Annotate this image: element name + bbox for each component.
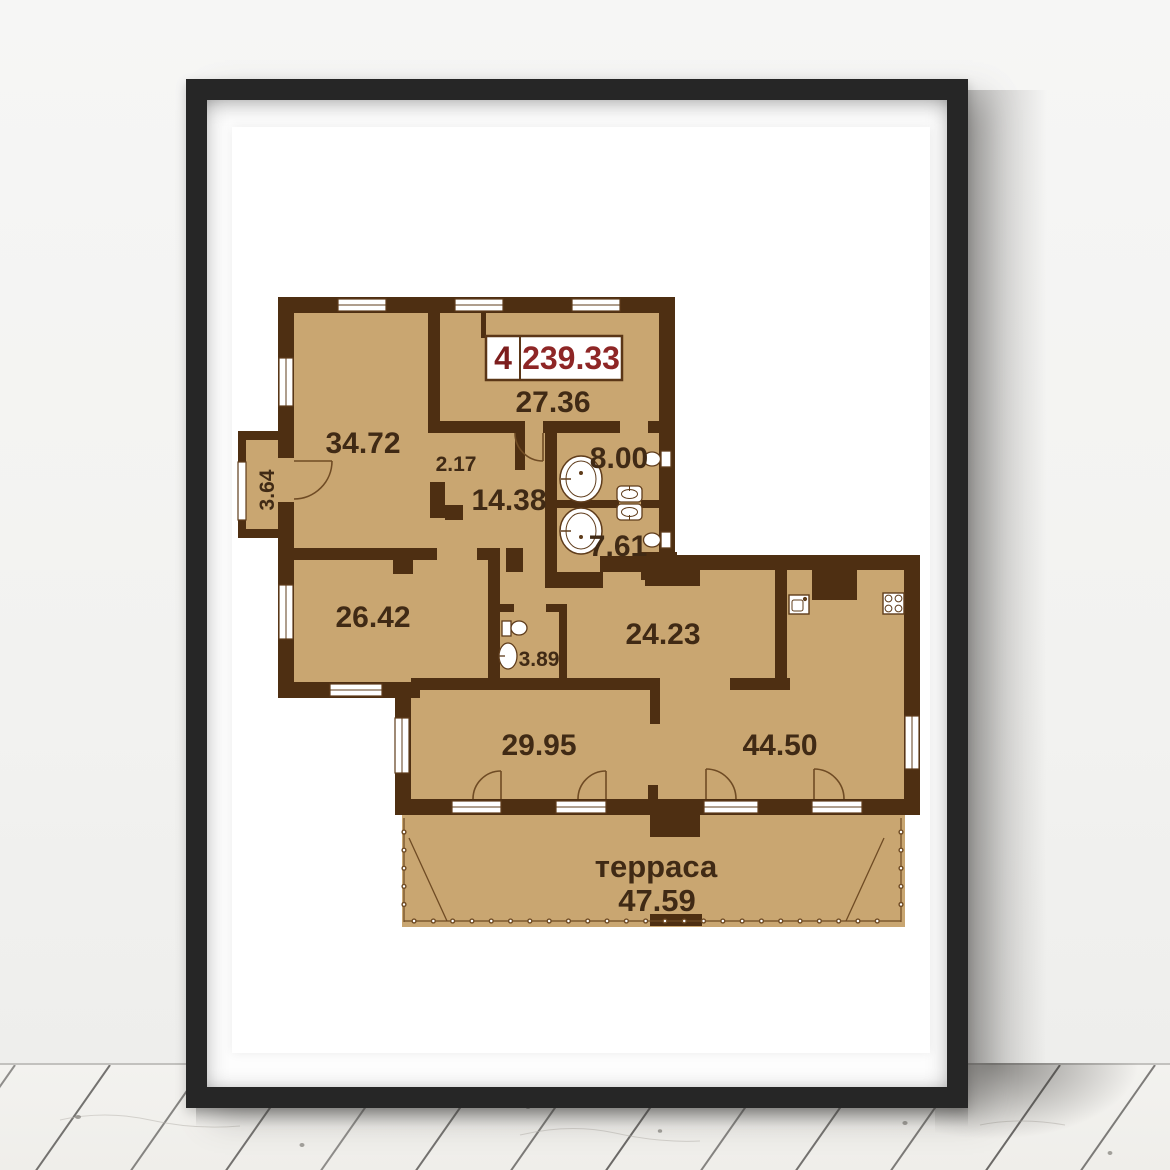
sink-icon xyxy=(617,486,642,502)
area-label-dining: 24.23 xyxy=(625,618,700,651)
sink-icon xyxy=(617,504,642,520)
area-label-bedroom-bottom: 29.95 xyxy=(501,729,576,762)
area-label-balcony: 3.64 xyxy=(256,469,279,510)
wc-sink-icon xyxy=(499,643,517,669)
area-label-living: 34.72 xyxy=(325,427,400,460)
unit-number: 4 xyxy=(494,340,512,376)
picture-frame: 4 239.33 27.36 34.72 3.64 2.17 14.38 8.0… xyxy=(186,79,968,1108)
stove-icon xyxy=(883,593,904,614)
toilet-icon xyxy=(502,621,527,636)
area-label-closet: 2.17 xyxy=(436,453,477,476)
area-label-hall: 27.36 xyxy=(515,386,590,419)
area-label-wc: 3.89 xyxy=(519,648,560,671)
balcony-door-opening xyxy=(278,458,294,502)
frame-shadow-on-wall xyxy=(966,90,1061,1065)
terrace-name-label: терраса xyxy=(595,849,718,884)
unit-total-area: 239.33 xyxy=(522,340,620,376)
area-label-bedroom-left: 26.42 xyxy=(335,601,410,634)
area-label-corridor: 14.38 xyxy=(471,484,546,517)
toilet-icon xyxy=(644,532,672,548)
floor-plan: 4 239.33 27.36 34.72 3.64 2.17 14.38 8.0… xyxy=(232,127,930,1053)
area-label-bath-bottom: 7.61 xyxy=(589,530,647,563)
poster-paper: 4 239.33 27.36 34.72 3.64 2.17 14.38 8.0… xyxy=(232,127,930,1053)
frame-shadow-on-floor xyxy=(935,1063,1170,1170)
scene: 4 239.33 27.36 34.72 3.64 2.17 14.38 8.0… xyxy=(0,0,1170,1170)
unit-badge: 4 239.33 xyxy=(486,336,622,380)
kitchen-sink-icon xyxy=(789,595,809,614)
terrace-area-label: 47.59 xyxy=(618,883,696,918)
area-label-bath-top: 8.00 xyxy=(590,442,648,475)
balcony-window xyxy=(238,462,246,520)
area-label-living-bottom: 44.50 xyxy=(742,729,817,762)
